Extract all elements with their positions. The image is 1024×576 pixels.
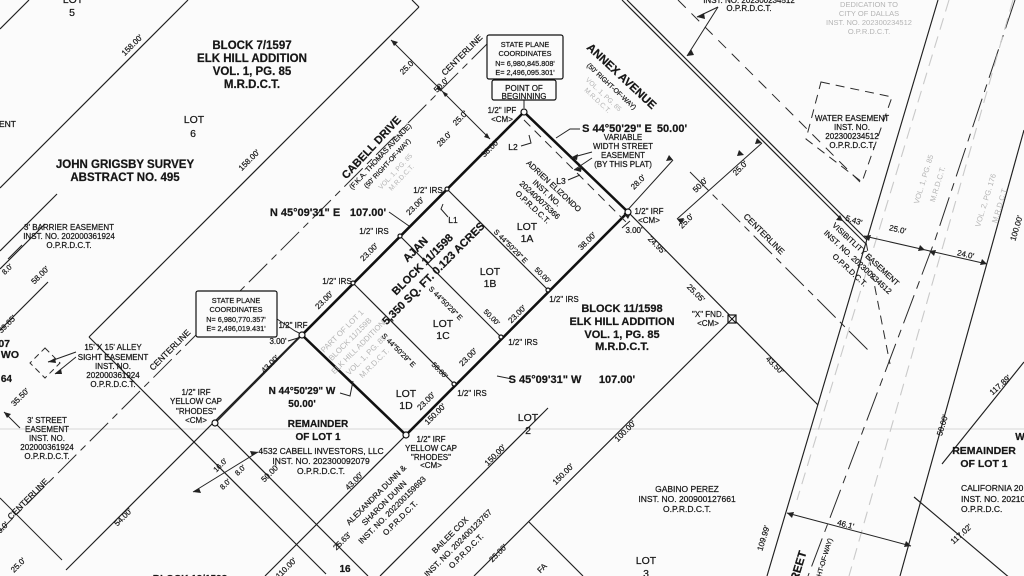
svg-text:3' BARRIER EASEMENT: 3' BARRIER EASEMENT	[24, 223, 114, 232]
svg-text:N 44°50'29" W: N 44°50'29" W	[269, 386, 336, 397]
svg-text:O.P.R.D.C.T.: O.P.R.D.C.T.	[297, 466, 345, 476]
svg-text:INST. NO.: INST. NO.	[29, 434, 65, 443]
svg-text:(BY THIS PLAT): (BY THIS PLAT)	[594, 160, 652, 169]
svg-text:JOHN GRIGSBY SURVEY: JOHN GRIGSBY SURVEY	[56, 159, 195, 171]
svg-text:3.00': 3.00'	[269, 337, 287, 346]
svg-text:VOL. 1, PG. 85: VOL. 1, PG. 85	[213, 66, 292, 78]
svg-text:202000361924: 202000361924	[86, 371, 140, 380]
svg-text:LOT: LOT	[184, 114, 205, 126]
svg-text:LOT: LOT	[636, 555, 657, 567]
svg-text:WIDTH STREET: WIDTH STREET	[593, 142, 653, 151]
svg-text:<CM>: <CM>	[697, 319, 719, 328]
svg-text:1D: 1D	[399, 400, 413, 412]
svg-text:N= 6,980,845.808': N= 6,980,845.808'	[495, 59, 555, 68]
svg-text:BEGINNING: BEGINNING	[502, 92, 547, 101]
svg-text:LOT: LOT	[480, 266, 501, 278]
svg-text:COORDINATES: COORDINATES	[499, 49, 552, 58]
svg-text:WO: WO	[1, 349, 19, 361]
svg-text:L2: L2	[508, 142, 518, 152]
svg-text:BLOCK 7/1597: BLOCK 7/1597	[212, 40, 291, 52]
svg-text:1/2" IRF: 1/2" IRF	[416, 435, 445, 444]
svg-text:STATE PLANE: STATE PLANE	[501, 40, 550, 49]
svg-text:O.P.R.D.C.T.: O.P.R.D.C.T.	[46, 241, 91, 250]
svg-text:M.R.D.C.T.: M.R.D.C.T.	[224, 79, 280, 91]
svg-text:GABINO PEREZ: GABINO PEREZ	[655, 484, 719, 494]
svg-text:ELK HILL ADDITION: ELK HILL ADDITION	[569, 316, 674, 328]
svg-text:3: 3	[643, 568, 649, 576]
svg-text:3.00': 3.00'	[625, 226, 643, 235]
svg-text:REMAINDER: REMAINDER	[952, 445, 1016, 457]
svg-text:ENT: ENT	[0, 119, 16, 129]
svg-text:1/2" IRF: 1/2" IRF	[278, 321, 307, 330]
svg-text:SIGHT EASEMENT: SIGHT EASEMENT	[78, 353, 149, 362]
svg-text:<CM>: <CM>	[420, 461, 442, 470]
svg-text:"X" FND.: "X" FND.	[692, 310, 724, 319]
svg-text:1/2" IPF: 1/2" IPF	[488, 106, 517, 115]
svg-text:COORDINATES: COORDINATES	[210, 305, 263, 314]
svg-text:OF LOT 1: OF LOT 1	[960, 458, 1007, 470]
svg-text:15' X 15' ALLEY: 15' X 15' ALLEY	[84, 343, 142, 352]
svg-text:M.R.D.C.T.: M.R.D.C.T.	[595, 341, 649, 353]
svg-text:1/2" IRS: 1/2" IRS	[322, 277, 352, 286]
svg-text:1/2" IRF: 1/2" IRF	[634, 207, 663, 216]
svg-text:<CM>: <CM>	[638, 216, 660, 225]
svg-text:O.P.R.D.C.T.: O.P.R.D.C.T.	[829, 141, 874, 150]
svg-text:E= 2,496,019.431': E= 2,496,019.431'	[206, 324, 266, 333]
svg-text:64: 64	[1, 374, 13, 385]
svg-text:50.00': 50.00'	[288, 399, 315, 410]
svg-text:CITY OF DALLAS: CITY OF DALLAS	[839, 9, 899, 18]
svg-text:INST. NO. 202100: INST. NO. 202100	[961, 494, 1024, 504]
svg-text:O.P.R.D.C.: O.P.R.D.C.	[961, 504, 1002, 514]
svg-text:"RHODES": "RHODES"	[176, 407, 216, 416]
svg-text:REMAINDER: REMAINDER	[288, 419, 349, 430]
svg-text:INST. NO.: INST. NO.	[834, 123, 870, 132]
svg-text:202000361924: 202000361924	[20, 443, 74, 452]
svg-text:1/2" IRS: 1/2" IRS	[549, 295, 579, 304]
svg-text:1C: 1C	[436, 330, 450, 342]
svg-text:1/2" IRS: 1/2" IRS	[457, 389, 487, 398]
svg-text:1B: 1B	[484, 278, 497, 290]
svg-text:LOT: LOT	[433, 318, 454, 330]
svg-text:5: 5	[69, 7, 75, 19]
svg-text:INST. NO. 200900127661: INST. NO. 200900127661	[638, 494, 736, 504]
svg-text:N= 6,980,770.357': N= 6,980,770.357'	[206, 315, 266, 324]
svg-text:O.P.R.D.C.T.: O.P.R.D.C.T.	[848, 27, 890, 36]
svg-text:107.00': 107.00'	[599, 374, 636, 386]
svg-text:O.P.R.D.C.T.: O.P.R.D.C.T.	[726, 4, 771, 13]
svg-text:202300234512: 202300234512	[825, 132, 879, 141]
svg-text:INST. NO. 202300234512: INST. NO. 202300234512	[826, 18, 912, 27]
svg-text:E= 2,496,095.301': E= 2,496,095.301'	[495, 68, 555, 77]
svg-text:O.P.R.D.C.T.: O.P.R.D.C.T.	[24, 452, 69, 461]
svg-text:S 45°09'31" W: S 45°09'31" W	[509, 374, 582, 386]
svg-text:50.00': 50.00'	[657, 123, 688, 135]
svg-text:OF LOT 1: OF LOT 1	[296, 432, 341, 443]
svg-text:WATER EASEMENT: WATER EASEMENT	[815, 114, 889, 123]
svg-text:CALIFORNIA 20: CALIFORNIA 20	[961, 483, 1024, 493]
svg-text:EASEMENT: EASEMENT	[25, 425, 69, 434]
svg-text:LOT: LOT	[396, 388, 417, 400]
svg-text:INST. NO. 202000361924: INST. NO. 202000361924	[23, 232, 115, 241]
svg-text:O.P.R.D.C.T.: O.P.R.D.C.T.	[90, 380, 135, 389]
svg-text:1/2" IRS: 1/2" IRS	[359, 227, 389, 236]
svg-text:O.P.R.D.C.T.: O.P.R.D.C.T.	[663, 504, 711, 514]
svg-text:W: W	[1015, 432, 1024, 443]
svg-text:1/2" IRF: 1/2" IRF	[181, 388, 210, 397]
svg-text:4532 CABELL INVESTORS, LLC: 4532 CABELL INVESTORS, LLC	[258, 446, 383, 456]
svg-text:107.00': 107.00'	[350, 207, 387, 219]
svg-text:DEDICATION TO: DEDICATION TO	[840, 0, 898, 9]
svg-text:ABSTRACT NO. 495: ABSTRACT NO. 495	[70, 172, 180, 184]
svg-text:2: 2	[525, 425, 531, 437]
svg-text:LOT: LOT	[63, 0, 84, 6]
svg-text:S 44°50'29" E: S 44°50'29" E	[582, 123, 652, 135]
svg-text:1/2" IRS: 1/2" IRS	[508, 338, 538, 347]
svg-text:EASEMENT: EASEMENT	[601, 151, 645, 160]
svg-text:INST. NO. 202300092079: INST. NO. 202300092079	[272, 456, 370, 466]
svg-text:YELLOW CAP: YELLOW CAP	[170, 397, 222, 406]
svg-text:6: 6	[190, 128, 196, 140]
svg-text:INST. NO.: INST. NO.	[95, 362, 131, 371]
svg-text:ELK HILL ADDITION: ELK HILL ADDITION	[197, 53, 307, 65]
svg-text:STATE PLANE: STATE PLANE	[212, 296, 261, 305]
svg-text:N 45°09'31" E: N 45°09'31" E	[270, 207, 340, 219]
svg-text:L1: L1	[448, 215, 458, 225]
svg-text:1A: 1A	[521, 233, 534, 245]
svg-text:<CM>: <CM>	[185, 416, 207, 425]
svg-text:<CM>: <CM>	[491, 115, 513, 124]
svg-text:YELLOW CAP: YELLOW CAP	[405, 444, 457, 453]
svg-text:VOL. 1, PG. 85: VOL. 1, PG. 85	[584, 329, 659, 341]
svg-text:LOT: LOT	[518, 412, 539, 424]
svg-text:BLOCK 11/1598: BLOCK 11/1598	[581, 303, 662, 315]
svg-text:3' STREET: 3' STREET	[27, 416, 67, 425]
svg-text:LOT: LOT	[517, 221, 538, 233]
svg-text:16: 16	[339, 564, 351, 575]
svg-text:1/2" IRS: 1/2" IRS	[413, 186, 443, 195]
